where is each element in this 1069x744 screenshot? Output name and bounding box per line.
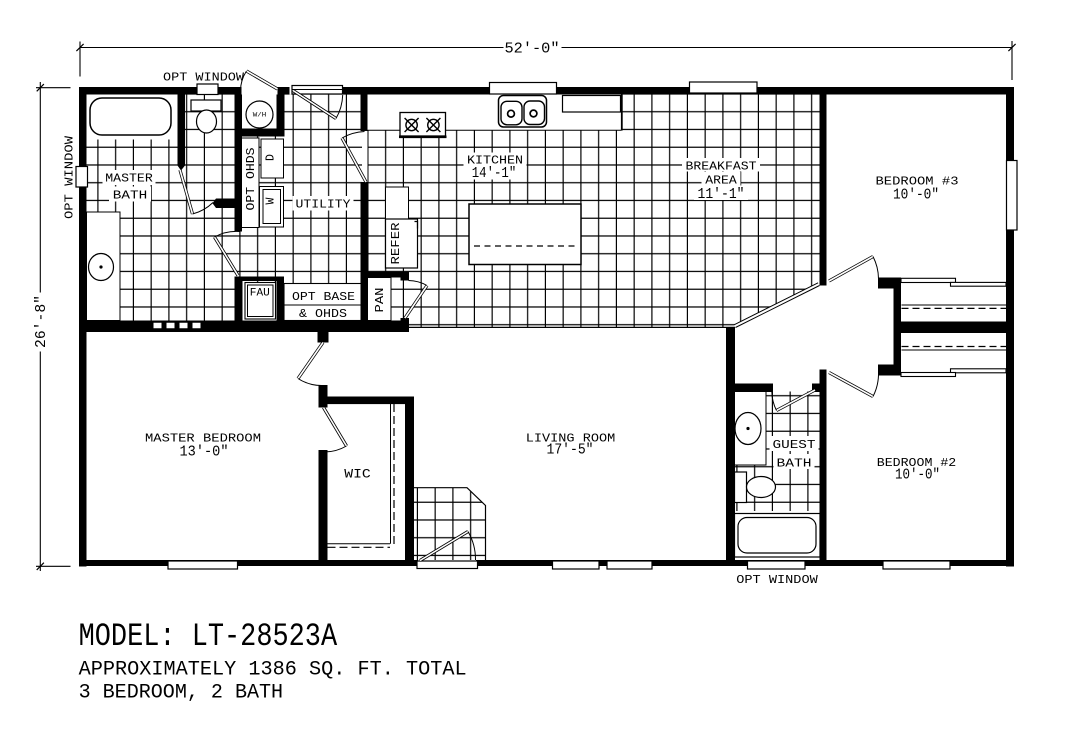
svg-text:APPROXIMATELY 1386 SQ. FT. TOT: APPROXIMATELY 1386 SQ. FT. TOTAL [79, 659, 467, 682]
svg-text:FAU: FAU [250, 288, 270, 300]
svg-text:AREA: AREA [705, 174, 737, 188]
svg-text:OPT BASE: OPT BASE [292, 290, 355, 304]
svg-text:BATH: BATH [777, 457, 812, 471]
svg-text:MASTER BEDROOM: MASTER BEDROOM [145, 432, 261, 446]
svg-text:17'-5": 17'-5" [547, 443, 594, 459]
svg-text:BATH: BATH [113, 189, 148, 203]
svg-text:UTILITY: UTILITY [296, 198, 351, 212]
svg-text:11'-1": 11'-1" [698, 187, 745, 203]
svg-text:REFER: REFER [390, 222, 403, 264]
svg-text:26'-8": 26'-8" [34, 295, 50, 348]
svg-text:52'-0": 52'-0" [505, 42, 560, 58]
svg-text:14'-1": 14'-1" [472, 166, 517, 182]
svg-text:BREAKFAST: BREAKFAST [686, 160, 757, 174]
svg-text:OPT WINDOW: OPT WINDOW [163, 71, 245, 85]
svg-text:10'-0": 10'-0" [893, 188, 939, 204]
svg-text:PAN: PAN [374, 288, 387, 313]
svg-text:GUEST: GUEST [773, 438, 816, 452]
svg-text:OPT WINDOW: OPT WINDOW [736, 573, 818, 587]
svg-text:W/H: W/H [253, 112, 267, 119]
svg-text:OPT WINDOW: OPT WINDOW [63, 135, 77, 219]
svg-text:MODEL: LT-28523A: MODEL: LT-28523A [79, 618, 338, 655]
svg-text:WIC: WIC [344, 468, 371, 482]
svg-text:10'-0": 10'-0" [895, 468, 940, 484]
svg-text:13'-0": 13'-0" [180, 445, 229, 461]
svg-text:OPT OHDS: OPT OHDS [245, 147, 258, 210]
svg-text:3 BEDROOM, 2 BATH: 3 BEDROOM, 2 BATH [79, 682, 284, 705]
svg-text:& OHDS: & OHDS [299, 307, 347, 321]
svg-text:BEDROOM #3: BEDROOM #3 [876, 175, 959, 189]
svg-text:W: W [265, 197, 278, 204]
svg-text:MASTER: MASTER [105, 172, 153, 186]
svg-text:D: D [265, 154, 278, 161]
